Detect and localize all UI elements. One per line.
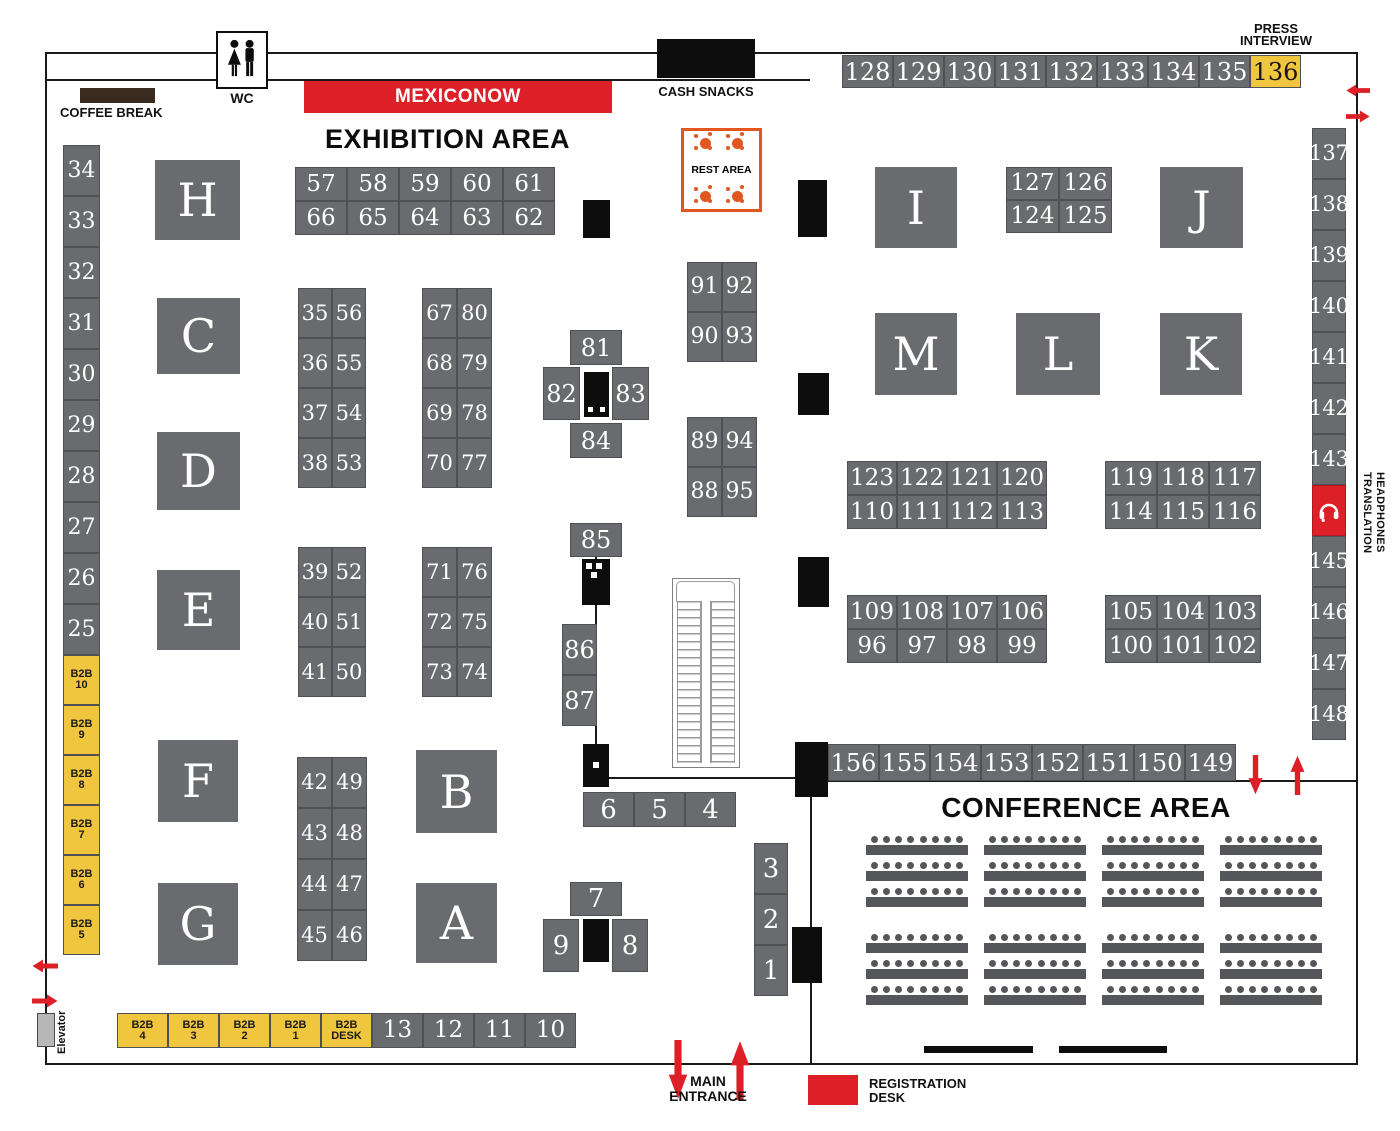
pillar xyxy=(583,919,609,962)
booth-117: 117 xyxy=(1209,461,1261,495)
booth-115: 115 xyxy=(1157,495,1209,529)
booth-105: 105 xyxy=(1105,595,1157,629)
booth-153: 153 xyxy=(981,744,1032,781)
booth-2: 2 xyxy=(754,894,788,945)
booth-E: E xyxy=(157,570,240,650)
booth-grid-127-125: 127126124125 xyxy=(1006,167,1112,233)
booth-56: 56 xyxy=(332,288,366,338)
booth-138: 138 xyxy=(1312,179,1346,230)
booth-M: M xyxy=(875,313,957,395)
booth-31: 31 xyxy=(63,298,100,349)
booth-78: 78 xyxy=(457,388,492,438)
booth-97: 97 xyxy=(897,629,947,663)
booth-I: I xyxy=(875,167,957,248)
booth-55: 55 xyxy=(332,338,366,388)
press-interview-label: PRESS INTERVIEW xyxy=(1236,23,1316,47)
table-with-chairs-icon xyxy=(700,138,711,149)
booth-69: 69 xyxy=(422,388,457,438)
booth-77: 77 xyxy=(457,438,492,488)
booth-K: K xyxy=(1160,313,1242,395)
booth-151: 151 xyxy=(1083,744,1134,781)
booth-33: 33 xyxy=(63,196,100,247)
exhibition-area-title: EXHIBITION AREA xyxy=(320,124,575,155)
booth-col-3-1: 321 xyxy=(754,843,788,996)
booth-D: D xyxy=(157,432,240,510)
seat-row xyxy=(1220,862,1322,881)
booth-134: 134 xyxy=(1148,55,1199,88)
booth-4: 4 xyxy=(685,792,736,827)
booth-col-137-143: 137138139140141142143 xyxy=(1312,128,1346,485)
booth-67: 67 xyxy=(422,288,457,338)
booth-124: 124 xyxy=(1006,200,1059,233)
seat-row xyxy=(984,836,1086,855)
booth-141: 141 xyxy=(1312,332,1346,383)
booth-130: 130 xyxy=(944,55,995,88)
booth-grid-91-93: 91929093 xyxy=(687,262,757,362)
exit-arrow-top-right-in xyxy=(1344,84,1372,97)
booth-9: 9 xyxy=(543,919,579,972)
booth-90: 90 xyxy=(687,312,722,362)
booth-63: 63 xyxy=(451,201,503,235)
booth-48: 48 xyxy=(332,808,367,859)
exit-arrow-top-right-out xyxy=(1344,110,1372,123)
booth-grid-57-66: 57585960616665646362 xyxy=(295,167,555,235)
booth-107: 107 xyxy=(947,595,997,629)
booth-59: 59 xyxy=(399,167,451,201)
translation-booth-144 xyxy=(1312,485,1346,536)
booth-142: 142 xyxy=(1312,383,1346,434)
booth-66: 66 xyxy=(295,201,347,235)
booth-A: A xyxy=(416,883,497,963)
booth-H: H xyxy=(155,160,240,240)
coffee-break-counter xyxy=(80,88,155,103)
exhibition-floor-plan: EXHIBITION AREA CONFERENCE AREA COFFEE B… xyxy=(0,0,1400,1131)
booth-53: 53 xyxy=(332,438,366,488)
booth-b2b-1: B2B1 xyxy=(270,1013,321,1048)
press-line2: INTERVIEW xyxy=(1240,33,1312,48)
booth-30: 30 xyxy=(63,349,100,400)
booth-89: 89 xyxy=(687,417,722,467)
booth-126: 126 xyxy=(1059,167,1112,200)
booth-29: 29 xyxy=(63,400,100,451)
booth-74: 74 xyxy=(457,647,492,697)
table-with-chairs-icon xyxy=(700,191,711,202)
seat-row xyxy=(1102,934,1204,953)
seat-row xyxy=(866,986,968,1005)
booth-98: 98 xyxy=(947,629,997,663)
seat-row xyxy=(984,888,1086,907)
booth-62: 62 xyxy=(503,201,555,235)
booth-41: 41 xyxy=(298,647,332,697)
booth-b2b-3: B2B3 xyxy=(168,1013,219,1048)
pillar xyxy=(792,927,822,983)
booth-J: J xyxy=(1160,167,1243,248)
booth-156: 156 xyxy=(828,744,879,781)
conference-area-title: CONFERENCE AREA xyxy=(940,792,1232,824)
registration-desk-label: REGISTRATION DESK xyxy=(869,1077,989,1105)
booth-64: 64 xyxy=(399,201,451,235)
booth-grid-89-95: 89948895 xyxy=(687,417,757,517)
booth-81: 81 xyxy=(570,330,622,365)
seat-row xyxy=(984,934,1086,953)
booth-row-6-4: 654 xyxy=(583,792,736,827)
translation-line2: HEADPHONES xyxy=(1374,472,1386,553)
booth-grid-42-46: 4249434844474546 xyxy=(297,757,367,961)
booth-95: 95 xyxy=(722,467,757,517)
booth-5: 5 xyxy=(634,792,685,827)
booth-27: 27 xyxy=(63,502,100,553)
booth-37: 37 xyxy=(298,388,332,438)
booth-109: 109 xyxy=(847,595,897,629)
seat-group xyxy=(866,934,1322,1005)
main-entrance-label: MAIN ENTRANCE xyxy=(652,1074,764,1104)
booth-F: F xyxy=(158,740,238,822)
booth-C: C xyxy=(157,298,240,374)
seat-row xyxy=(984,986,1086,1005)
booth-40: 40 xyxy=(298,597,332,647)
booth-grid-105-102: 105104103100101102 xyxy=(1105,595,1261,663)
booth-8: 8 xyxy=(612,919,648,972)
seat-row xyxy=(1220,836,1322,855)
booth-82: 82 xyxy=(543,367,580,420)
booth-43: 43 xyxy=(297,808,332,859)
booth-42: 42 xyxy=(297,757,332,808)
b2b-row-4-desk: B2B4B2B3B2B2B2B1B2BDESK xyxy=(117,1013,372,1048)
booth-149: 149 xyxy=(1185,744,1236,781)
booth-102: 102 xyxy=(1209,629,1261,663)
booth-65: 65 xyxy=(347,201,399,235)
seat-row xyxy=(866,934,968,953)
booth-73: 73 xyxy=(422,647,457,697)
booth-71: 71 xyxy=(422,547,457,597)
stair-divider xyxy=(701,601,711,763)
seat-row xyxy=(866,862,968,881)
booth-44: 44 xyxy=(297,859,332,910)
booth-111: 111 xyxy=(897,495,947,529)
seat-row xyxy=(866,960,968,979)
booth-101: 101 xyxy=(1157,629,1209,663)
booth-13: 13 xyxy=(372,1013,423,1048)
booth-120: 120 xyxy=(997,461,1047,495)
conference-seating xyxy=(866,836,1322,1005)
booth-10: 10 xyxy=(525,1013,576,1048)
booth-col-145-148: 145146147148 xyxy=(1312,536,1346,740)
seat-row xyxy=(1220,888,1322,907)
pillar xyxy=(798,180,827,237)
booth-146: 146 xyxy=(1312,587,1346,638)
elevator-marker xyxy=(37,1013,55,1047)
booth-154: 154 xyxy=(930,744,981,781)
wall-conference-top-left xyxy=(609,777,797,779)
exit-arrow-bottom-left-in xyxy=(26,994,64,1008)
seat-row xyxy=(1102,960,1204,979)
wc-sign xyxy=(216,31,268,89)
service-core-81-84 xyxy=(584,372,609,417)
booth-106: 106 xyxy=(997,595,1047,629)
booth-54: 54 xyxy=(332,388,366,438)
booth-80: 80 xyxy=(457,288,492,338)
registration-line1: REGISTRATION xyxy=(869,1076,966,1091)
booth-70: 70 xyxy=(422,438,457,488)
booth-45: 45 xyxy=(297,910,332,961)
booth-139: 139 xyxy=(1312,230,1346,281)
booth-50: 50 xyxy=(332,647,366,697)
rest-area-label: REST AREA xyxy=(690,164,753,176)
booth-12: 12 xyxy=(423,1013,474,1048)
pillar xyxy=(798,373,829,415)
booth-103: 103 xyxy=(1209,595,1261,629)
stage-table xyxy=(1059,1046,1167,1053)
booth-129: 129 xyxy=(893,55,944,88)
booth-87: 87 xyxy=(562,675,597,726)
booth-b2b-6: B2B6 xyxy=(63,855,100,905)
booth-61: 61 xyxy=(503,167,555,201)
booth-b2b-5: B2B5 xyxy=(63,905,100,955)
booth-135: 135 xyxy=(1199,55,1250,88)
booth-86: 86 xyxy=(562,624,597,675)
booth-57: 57 xyxy=(295,167,347,201)
booth-46: 46 xyxy=(332,910,367,961)
translation-line1: TRANSLATION xyxy=(1361,472,1373,553)
booth-150: 150 xyxy=(1134,744,1185,781)
b2b-col-10-5: B2B10B2B9B2B8B2B7B2B6B2B5 xyxy=(63,655,100,955)
stair-landing xyxy=(676,581,735,602)
seat-row xyxy=(1102,836,1204,855)
wall-bottom xyxy=(45,1063,1358,1065)
booth-147: 147 xyxy=(1312,638,1346,689)
headphones-icon xyxy=(1317,499,1341,523)
booth-114: 114 xyxy=(1105,495,1157,529)
booth-35: 35 xyxy=(298,288,332,338)
restroom-man-woman-icon xyxy=(223,38,261,82)
booth-b2b-10: B2B10 xyxy=(63,655,100,705)
seat-row xyxy=(1220,986,1322,1005)
booth-85: 85 xyxy=(570,523,622,557)
staircase xyxy=(672,578,740,768)
booth-83: 83 xyxy=(612,367,649,420)
booth-34: 34 xyxy=(63,145,100,196)
seat-row xyxy=(1220,960,1322,979)
booth-b2b-4: B2B4 xyxy=(117,1013,168,1048)
booth-84: 84 xyxy=(570,423,622,458)
pillar xyxy=(795,742,828,797)
booth-b2b-9: B2B9 xyxy=(63,705,100,755)
booth-140: 140 xyxy=(1312,281,1346,332)
booth-99: 99 xyxy=(997,629,1047,663)
seat-row xyxy=(1102,888,1204,907)
booth-122: 122 xyxy=(897,461,947,495)
booth-25: 25 xyxy=(63,604,100,655)
cash-snacks-counter xyxy=(657,39,755,78)
seat-row xyxy=(1220,934,1322,953)
booth-143: 143 xyxy=(1312,434,1346,485)
booth-grid-39-50: 395240514150 xyxy=(298,547,366,697)
booth-32: 32 xyxy=(63,247,100,298)
booth-38: 38 xyxy=(298,438,332,488)
cash-snacks-label: CASH SNACKS xyxy=(646,84,766,99)
booth-grid-109-99: 10910810710696979899 xyxy=(847,595,1047,663)
booth-145: 145 xyxy=(1312,536,1346,587)
booth-b2b-2: B2B2 xyxy=(219,1013,270,1048)
booth-68: 68 xyxy=(422,338,457,388)
booth-49: 49 xyxy=(332,757,367,808)
booth-B: B xyxy=(416,750,497,833)
booth-L: L xyxy=(1016,313,1100,395)
stair-flight-left xyxy=(677,601,701,763)
conference-arrow-out xyxy=(1290,755,1305,795)
booth-row-156-149: 156155154153152151150149 xyxy=(828,744,1236,781)
seat-row xyxy=(1102,986,1204,1005)
rest-area-tables-bottom xyxy=(690,191,753,202)
booth-row-128-135: 128129130131132133134135 xyxy=(842,55,1250,88)
booth-118: 118 xyxy=(1157,461,1209,495)
booth-72: 72 xyxy=(422,597,457,647)
booth-75: 75 xyxy=(457,597,492,647)
rest-area-tables-top xyxy=(690,138,753,149)
booth-108: 108 xyxy=(897,595,947,629)
booth-116: 116 xyxy=(1209,495,1261,529)
booth-93: 93 xyxy=(722,312,757,362)
rest-area: REST AREA xyxy=(681,128,762,212)
booth-b2b-7: B2B7 xyxy=(63,805,100,855)
booth-137: 137 xyxy=(1312,128,1346,179)
booth-39: 39 xyxy=(298,547,332,597)
main-entrance-line1: MAIN xyxy=(690,1073,726,1089)
registration-line2: DESK xyxy=(869,1090,905,1105)
booth-52: 52 xyxy=(332,547,366,597)
booth-91: 91 xyxy=(687,262,722,312)
booth-125: 125 xyxy=(1059,200,1112,233)
booth-col-34-25: 34333231302928272625 xyxy=(63,145,100,655)
booth-121: 121 xyxy=(947,461,997,495)
exit-arrow-bottom-left-out xyxy=(26,959,64,973)
pillar xyxy=(798,557,829,607)
stage-table xyxy=(924,1046,1033,1053)
booth-79: 79 xyxy=(457,338,492,388)
coffee-break-label: COFFEE BREAK xyxy=(60,105,178,120)
elevator-label: Elevator xyxy=(56,1008,68,1054)
registration-desk-marker xyxy=(808,1075,858,1105)
booth-100: 100 xyxy=(1105,629,1157,663)
booth-47: 47 xyxy=(332,859,367,910)
booth-94: 94 xyxy=(722,417,757,467)
booth-b2b-desk: B2BDESK xyxy=(321,1013,372,1048)
booth-11: 11 xyxy=(474,1013,525,1048)
booth-60: 60 xyxy=(451,167,503,201)
seat-group xyxy=(866,836,1322,907)
seat-row xyxy=(984,862,1086,881)
booth-grid-67-77: 6780687969787077 xyxy=(422,288,492,488)
booth-119: 119 xyxy=(1105,461,1157,495)
booth-1: 1 xyxy=(754,945,788,996)
booth-28: 28 xyxy=(63,451,100,502)
booth-152: 152 xyxy=(1032,744,1083,781)
seat-row xyxy=(866,888,968,907)
booth-110: 110 xyxy=(847,495,897,529)
booth-127: 127 xyxy=(1006,167,1059,200)
seat-row xyxy=(1102,862,1204,881)
booth-grid-119-116: 119118117114115116 xyxy=(1105,461,1261,529)
booth-51: 51 xyxy=(332,597,366,647)
stair-flight-right xyxy=(711,601,735,763)
booth-96: 96 xyxy=(847,629,897,663)
table-with-chairs-icon xyxy=(732,138,743,149)
booth-7: 7 xyxy=(570,882,622,916)
booth-88: 88 xyxy=(687,467,722,517)
seat-row xyxy=(984,960,1086,979)
booth-G: G xyxy=(158,883,238,965)
booth-113: 113 xyxy=(997,495,1047,529)
pillar xyxy=(583,200,610,238)
conference-arrow-in xyxy=(1248,755,1263,795)
booth-123: 123 xyxy=(847,461,897,495)
booth-grid-35-53: 3556365537543853 xyxy=(298,288,366,488)
booth-131: 131 xyxy=(995,55,1046,88)
booth-136: 136 xyxy=(1250,55,1301,88)
booth-b2b-8: B2B8 xyxy=(63,755,100,805)
booth-76: 76 xyxy=(457,547,492,597)
booth-148: 148 xyxy=(1312,689,1346,740)
seat-row xyxy=(866,836,968,855)
booth-36: 36 xyxy=(298,338,332,388)
booth-58: 58 xyxy=(347,167,399,201)
booth-128: 128 xyxy=(842,55,893,88)
translation-headphones-label: TRANSLATION HEADPHONES xyxy=(1360,450,1386,575)
wall-right xyxy=(1356,52,1358,1065)
booth-155: 155 xyxy=(879,744,930,781)
mexiconow-banner: MEXICONOW xyxy=(304,81,612,113)
main-entrance-line2: ENTRANCE xyxy=(669,1088,747,1104)
booth-104: 104 xyxy=(1157,595,1209,629)
booth-92: 92 xyxy=(722,262,757,312)
wc-label: WC xyxy=(216,90,268,106)
booth-grid-123-113: 123122121120110111112113 xyxy=(847,461,1047,529)
booth-26: 26 xyxy=(63,553,100,604)
booth-133: 133 xyxy=(1097,55,1148,88)
stair-core-icon xyxy=(582,559,610,605)
booth-3: 3 xyxy=(754,843,788,894)
booth-grid-71-74: 717672757374 xyxy=(422,547,492,697)
booth-112: 112 xyxy=(947,495,997,529)
booth-row-13-10: 13121110 xyxy=(372,1013,576,1048)
table-with-chairs-icon xyxy=(732,191,743,202)
booth-132: 132 xyxy=(1046,55,1097,88)
booth-6: 6 xyxy=(583,792,634,827)
wall-left xyxy=(45,52,47,1065)
junction-box xyxy=(583,744,609,787)
